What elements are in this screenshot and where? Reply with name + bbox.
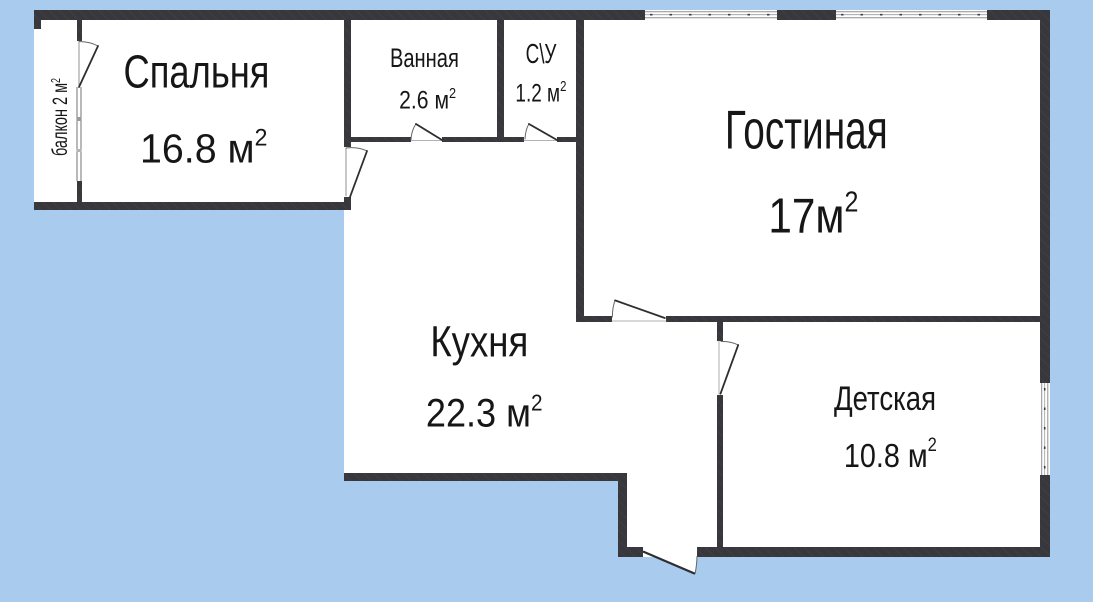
svg-text:Ванная: Ванная xyxy=(390,43,459,74)
svg-text:Спальня: Спальня xyxy=(124,45,270,97)
svg-text:2.6 м2: 2.6 м2 xyxy=(399,84,456,114)
svg-text:10.8 м2: 10.8 м2 xyxy=(844,434,937,475)
svg-text:Детская: Детская xyxy=(834,379,936,417)
svg-text:22.3 м2: 22.3 м2 xyxy=(426,390,543,436)
svg-text:Гостиная: Гостиная xyxy=(725,100,888,161)
svg-text:16.8 м2: 16.8 м2 xyxy=(140,124,267,172)
svg-text:Кухня: Кухня xyxy=(430,316,528,366)
svg-text:балкон 2 м2: балкон 2 м2 xyxy=(48,78,71,156)
svg-text:С\У: С\У xyxy=(526,39,558,71)
svg-text:1.2 м2: 1.2 м2 xyxy=(515,77,566,107)
